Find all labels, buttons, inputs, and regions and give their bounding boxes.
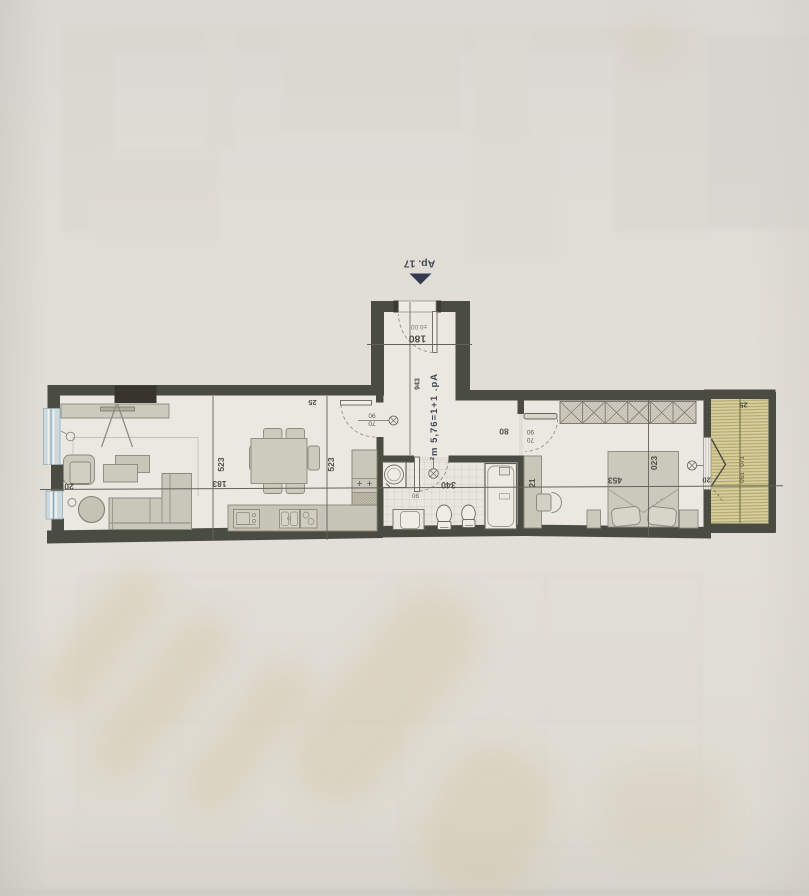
svg-text:25: 25 [739, 401, 747, 410]
svg-text:90: 90 [412, 492, 420, 499]
svg-text:340: 340 [441, 480, 456, 490]
svg-text:²m 5,76=1+1 .pA: ²m 5,76=1+1 .pA [429, 373, 440, 460]
svg-text:70: 70 [527, 436, 535, 443]
svg-text:21: 21 [528, 478, 537, 487]
svg-text:071: 071 [739, 456, 746, 467]
svg-text:20: 20 [64, 482, 74, 492]
svg-text:25: 25 [308, 398, 316, 407]
svg-text:Ap. 17: Ap. 17 [404, 258, 436, 270]
svg-text:80: 80 [499, 427, 509, 437]
svg-text:943: 943 [415, 378, 422, 390]
svg-text:20: 20 [702, 476, 710, 485]
svg-text:183: 183 [212, 479, 226, 489]
svg-text:523: 523 [326, 457, 336, 471]
svg-text:70: 70 [368, 420, 376, 427]
svg-text:523: 523 [216, 457, 226, 471]
svg-text:051: 051 [739, 472, 746, 483]
svg-text:90: 90 [368, 412, 376, 419]
svg-text:180: 180 [409, 333, 427, 345]
svg-text:±0.00: ±0.00 [411, 323, 428, 330]
svg-text:90: 90 [527, 428, 535, 435]
svg-text:023: 023 [649, 456, 659, 470]
svg-text:453: 453 [608, 476, 622, 486]
